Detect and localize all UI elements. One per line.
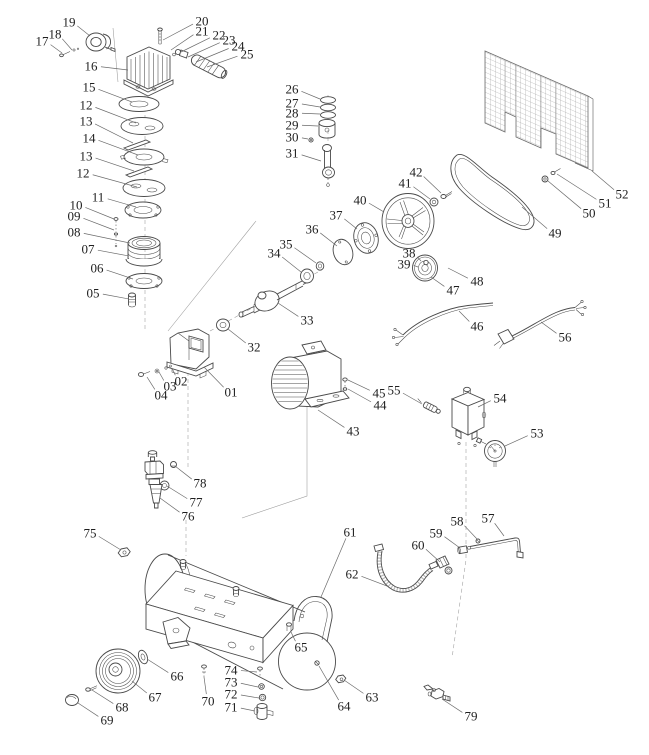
part-label-58-59: 58 <box>451 515 464 528</box>
leader-line-72-73 <box>241 695 259 698</box>
leader-line-48-49 <box>448 268 468 278</box>
part-label-57-58: 57 <box>482 512 495 525</box>
leader-line-15-16 <box>98 89 132 102</box>
part-label-42-43: 42 <box>410 166 423 179</box>
part-label-11-10: 11 <box>92 191 105 204</box>
leader-line-67-68 <box>132 681 147 693</box>
part-label-63-64: 63 <box>366 691 379 704</box>
part-label-12-15: 12 <box>77 167 90 180</box>
leader-line-77-78 <box>167 486 187 499</box>
leader-line-33-34 <box>278 303 298 316</box>
leader-line-12-11 <box>95 107 136 123</box>
part-label-53-54: 53 <box>531 427 544 440</box>
part-label-13-12: 13 <box>80 115 93 128</box>
leader-line-18-19 <box>62 39 72 50</box>
leader-line-69-70 <box>78 703 98 716</box>
leader-line-26-27 <box>301 91 320 99</box>
leader-line-75-76 <box>99 536 121 550</box>
part-label-64-65: 64 <box>338 700 351 713</box>
leader-line-05-4 <box>103 294 129 299</box>
leader-line-74-75 <box>241 671 257 672</box>
leader-line-19-20 <box>77 26 90 36</box>
part-label-48-49: 48 <box>471 275 484 288</box>
leader-line-06-5 <box>107 270 133 279</box>
leader-line-73-74 <box>241 683 258 687</box>
part-label-07-6: 07 <box>82 243 95 256</box>
leader-line-34-35 <box>282 257 301 272</box>
part-label-15-16: 15 <box>83 81 96 94</box>
part-label-55-56: 55 <box>388 384 401 397</box>
part-label-56-57: 56 <box>559 331 572 344</box>
part-label-60-61: 60 <box>412 539 425 552</box>
part-label-76-77: 76 <box>182 510 195 523</box>
leader-line-68-69 <box>92 690 113 704</box>
part-label-21-22: 21 <box>196 25 209 38</box>
part-label-49-50: 49 <box>549 227 562 240</box>
part-label-46-47: 46 <box>471 320 484 333</box>
leader-line-58-59 <box>464 526 477 539</box>
leader-line-55-56 <box>403 393 422 404</box>
exploded-parts-diagram: 0102030405060708091011121314131215161718… <box>0 0 649 755</box>
leader-line-71-72 <box>241 708 255 711</box>
leader-line-51-52 <box>557 174 596 199</box>
leader-line-57-58 <box>495 523 504 536</box>
part-label-14-13: 14 <box>83 132 96 145</box>
part-label-16-17: 16 <box>85 60 98 73</box>
leader-line-40-41 <box>369 203 384 212</box>
leader-line-62-63 <box>361 576 387 586</box>
part-label-74-75: 74 <box>225 664 238 677</box>
part-label-04-3: 04 <box>155 389 168 402</box>
leader-line-29-30 <box>302 125 318 126</box>
part-label-32-33: 32 <box>248 341 261 354</box>
part-label-59-60: 59 <box>430 527 443 540</box>
part-label-50-51: 50 <box>583 207 596 220</box>
leader-line-63-64 <box>344 680 363 693</box>
part-label-06-5: 06 <box>91 262 104 275</box>
leader-line-41-42 <box>413 187 430 199</box>
leader-line-25-26 <box>207 56 237 67</box>
leader-line-52-53 <box>592 171 614 190</box>
part-label-31-32: 31 <box>286 147 299 160</box>
leader-line-79-80 <box>442 699 462 712</box>
label-layer <box>0 0 649 755</box>
part-label-79-80: 79 <box>465 710 478 723</box>
leader-line-54-55 <box>478 401 491 407</box>
leader-line-50-51 <box>548 181 581 209</box>
leader-lines <box>51 24 614 716</box>
part-label-26-27: 26 <box>286 83 299 96</box>
part-label-17-18: 17 <box>36 35 49 48</box>
leader-line-76-77 <box>160 498 180 512</box>
part-label-52-53: 52 <box>616 188 629 201</box>
part-label-78-79: 78 <box>194 477 207 490</box>
part-label-65-66: 65 <box>295 641 308 654</box>
part-label-12-11: 12 <box>80 99 93 112</box>
part-label-75-76: 75 <box>84 527 97 540</box>
part-label-77-78: 77 <box>190 496 203 509</box>
part-label-70-71: 70 <box>202 695 215 708</box>
leader-line-47-48 <box>431 277 444 286</box>
leader-line-78-79 <box>175 466 192 479</box>
leader-line-12-15 <box>93 175 137 187</box>
part-label-45-46: 45 <box>373 387 386 400</box>
part-label-10-9: 10 <box>70 199 83 212</box>
part-label-18-19: 18 <box>49 28 62 41</box>
leader-line-66-67 <box>147 659 168 673</box>
part-label-01-0: 01 <box>225 386 238 399</box>
leader-line-24-25 <box>196 48 229 62</box>
part-label-33-34: 33 <box>301 314 314 327</box>
part-label-51-52: 51 <box>599 197 612 210</box>
part-label-54-55: 54 <box>494 392 507 405</box>
part-label-39-40: 39 <box>398 258 411 271</box>
leader-line-13-12 <box>95 124 133 143</box>
leader-line-49-50 <box>522 207 547 229</box>
part-label-25-26: 25 <box>241 48 254 61</box>
part-label-40-41: 40 <box>354 194 367 207</box>
leader-line-16-17 <box>101 67 128 70</box>
leader-line-46-47 <box>459 311 469 322</box>
leader-line-31-32 <box>302 155 321 161</box>
leader-line-20-21 <box>163 24 193 40</box>
leader-line-42-43 <box>424 177 441 193</box>
part-label-62-63: 62 <box>346 568 359 581</box>
leader-line-13-14 <box>96 158 134 171</box>
leader-line-53-54 <box>505 436 528 446</box>
part-label-13-14: 13 <box>80 150 93 163</box>
part-label-37-38: 37 <box>330 209 343 222</box>
leader-line-43-44 <box>318 410 344 427</box>
part-label-35-36: 35 <box>280 238 293 251</box>
leader-line-38-39 <box>417 257 421 261</box>
part-label-43-44: 43 <box>347 425 360 438</box>
leader-line-10-9 <box>85 207 114 219</box>
leader-line-44-45 <box>348 389 371 402</box>
leader-line-70-71 <box>204 677 206 694</box>
leader-line-17-18 <box>51 45 62 53</box>
part-label-47-48: 47 <box>447 284 460 297</box>
leader-line-56-57 <box>541 322 557 333</box>
leader-line-45-46 <box>348 380 370 390</box>
leader-line-09-8 <box>83 218 114 230</box>
leader-line-27-28 <box>302 104 320 107</box>
part-label-19-20: 19 <box>63 16 76 29</box>
leader-line-23-24 <box>188 43 220 57</box>
part-label-69-70: 69 <box>101 714 114 727</box>
part-label-71-72: 71 <box>225 701 238 714</box>
part-label-66-67: 66 <box>171 670 184 683</box>
leader-line-32-33 <box>228 329 246 343</box>
leader-line-07-6 <box>98 250 129 256</box>
leader-line-39-40 <box>414 265 418 267</box>
part-label-36-37: 36 <box>306 223 319 236</box>
leader-line-59-60 <box>444 537 460 548</box>
part-label-05-4: 05 <box>87 287 100 300</box>
part-label-68-69: 68 <box>116 701 129 714</box>
part-label-30-31: 30 <box>286 131 299 144</box>
leader-line-36-37 <box>320 233 337 246</box>
leader-line-35-36 <box>294 248 316 263</box>
leader-line-01-0 <box>204 367 224 387</box>
leader-line-11-10 <box>108 199 136 207</box>
leader-line-60-61 <box>426 549 440 562</box>
leader-line-61-62 <box>321 538 346 597</box>
leader-line-37-38 <box>344 219 357 229</box>
leader-line-30-31 <box>302 138 308 139</box>
part-label-08-7: 08 <box>68 226 81 239</box>
part-label-67-68: 67 <box>149 691 162 704</box>
part-label-61-62: 61 <box>344 526 357 539</box>
leader-line-28-29 <box>302 113 320 114</box>
leader-line-64-65 <box>319 666 339 700</box>
